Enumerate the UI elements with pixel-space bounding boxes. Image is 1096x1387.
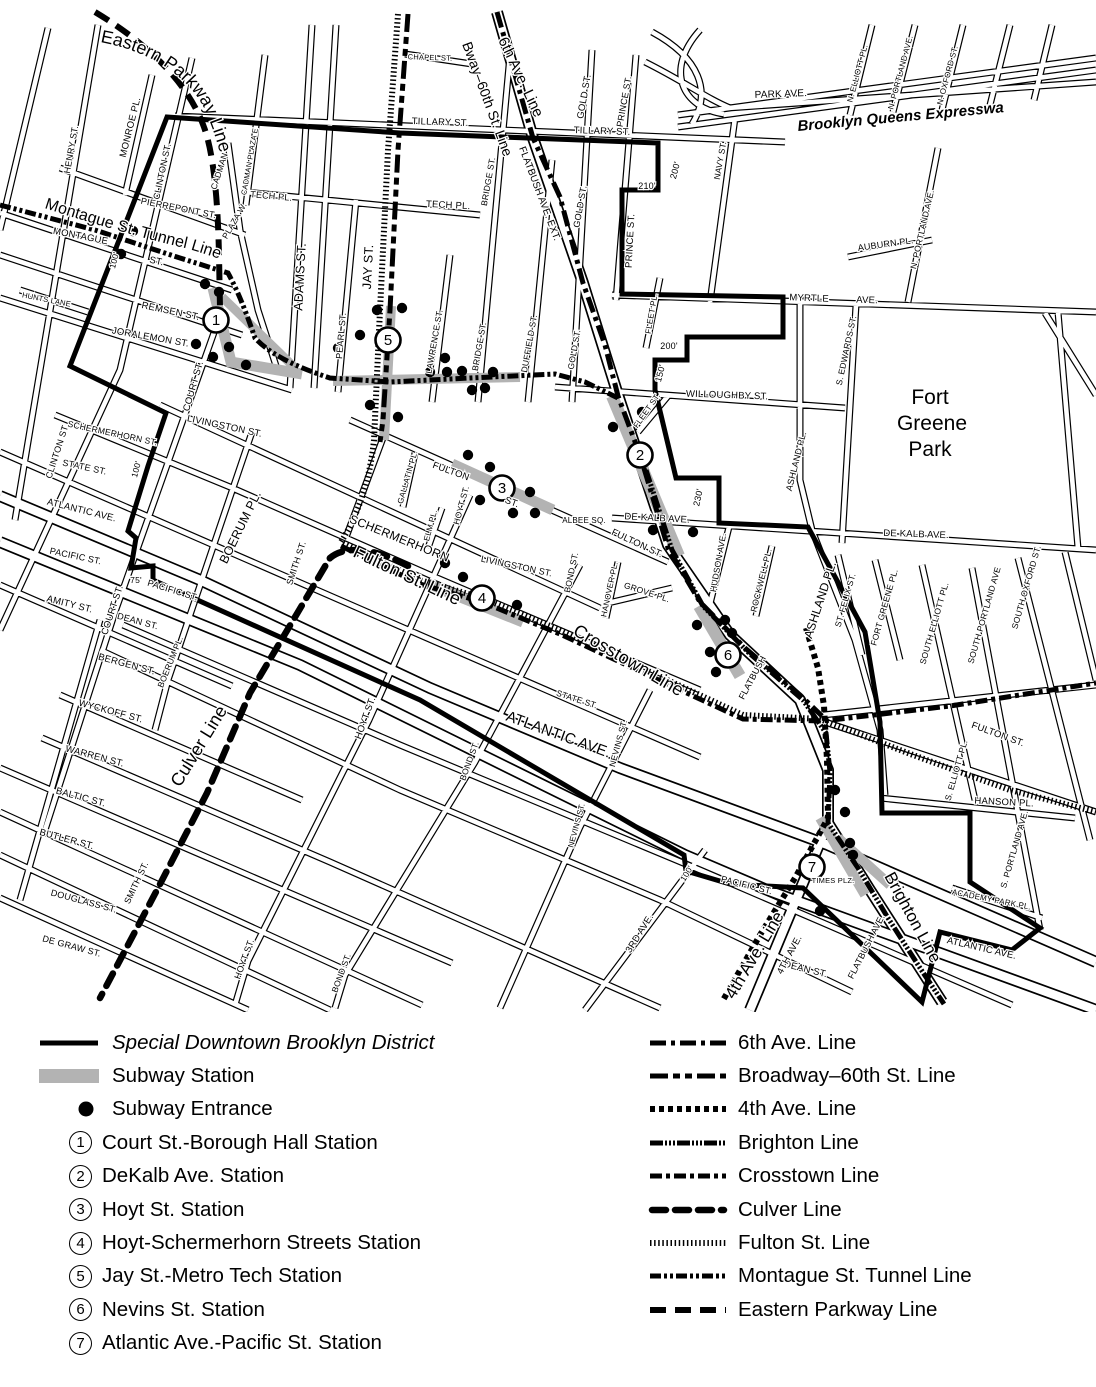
subway-entrance-dot	[512, 600, 522, 610]
legend-row-line-crosstown: Crosstown Line	[648, 1160, 972, 1193]
legend-row-station-3: 3 Hoyt St. Station	[38, 1193, 434, 1226]
fulton-swatch	[648, 1235, 728, 1251]
downtown-brooklyn-subway-map-page: 1234567 Fort Greene Park Eastern Parkway…	[0, 0, 1096, 1387]
legend-row-line-eastern: Eastern Parkway Line	[648, 1293, 972, 1326]
street-label: JAY ST.	[360, 244, 376, 289]
brighton-swatch	[648, 1135, 728, 1151]
subway-entrance-dot	[840, 807, 850, 817]
subway-entrance-dot	[488, 367, 498, 377]
subway-entrance-dot	[397, 303, 407, 313]
subway-entrance-dot	[457, 366, 467, 376]
legend-row-station: Subway Station	[38, 1059, 434, 1092]
street-label: TECH PL.	[426, 199, 471, 212]
station-5-label: Jay St.-Metro Tech Station	[102, 1264, 342, 1288]
legend-right-column: 6th Ave. Line Broadway–60th St. Line 4th…	[648, 1026, 972, 1327]
street-label: 210'	[638, 181, 656, 191]
subway-entrance-dot	[711, 667, 721, 677]
fourth-ave-swatch	[648, 1101, 728, 1117]
legend-row-station-7: 7 Atlantic Ave.-Pacific St. Station	[38, 1327, 434, 1360]
station-4-badge: 4	[69, 1232, 92, 1255]
montague-swatch	[648, 1268, 728, 1284]
station-1-label: Court St.-Borough Hall Station	[102, 1131, 378, 1155]
legend-row-district: Special Downtown Brooklyn District	[38, 1026, 434, 1059]
street-label: PARK AVE.	[754, 88, 807, 101]
subway-entrance-dot	[191, 339, 201, 349]
district-label: Special Downtown Brooklyn District	[112, 1031, 434, 1055]
line-label-sixth: 6th Ave. Line	[738, 1031, 856, 1055]
svg-text:6: 6	[724, 647, 732, 664]
legend-row-station-5: 5 Jay St.-Metro Tech Station	[38, 1260, 434, 1293]
line-label-brighton: Brighton Line	[738, 1131, 859, 1155]
station-6-label: Nevins St. Station	[102, 1298, 265, 1322]
station-4-label: Hoyt-Schermerhorn Streets Station	[102, 1231, 421, 1255]
legend-row-line-broadway: Broadway–60th St. Line	[648, 1059, 972, 1092]
street-label: DE KALB AVE.	[883, 528, 949, 541]
station-label: Subway Station	[112, 1064, 254, 1088]
line-label-broadway: Broadway–60th St. Line	[738, 1064, 956, 1088]
station-5-badge: 5	[69, 1265, 92, 1288]
station-2-badge: 2	[69, 1165, 92, 1188]
svg-text:1: 1	[212, 312, 220, 329]
line-label-crosstown: Crosstown Line	[738, 1164, 879, 1188]
park-label-line3: Park	[908, 438, 952, 461]
svg-text:4: 4	[478, 590, 486, 607]
station-swatch	[38, 1067, 100, 1085]
legend-left-column: Special Downtown Brooklyn District Subwa…	[38, 1026, 434, 1360]
subway-entrance-dot	[458, 572, 468, 582]
station-band-jay-st	[384, 306, 391, 440]
line-label-montague: Montague St. Tunnel Line	[738, 1264, 972, 1288]
subway-entrance-dot	[393, 412, 403, 422]
subway-entrance-dot	[705, 647, 715, 657]
street-label: CHAPEL ST.	[408, 52, 453, 63]
subway-entrance-dot	[688, 527, 698, 537]
subway-entrance-dot	[648, 525, 658, 535]
street-label: AVE.	[856, 295, 878, 307]
eastern-swatch	[648, 1302, 728, 1318]
entrance-dot-swatch	[38, 1100, 100, 1118]
subway-entrance-dot	[845, 838, 855, 848]
station-7-label: Atlantic Ave.-Pacific St. Station	[102, 1331, 382, 1355]
street-label: 75'	[130, 575, 142, 585]
legend-row-station-6: 6 Nevins St. Station	[38, 1293, 434, 1326]
subway-entrance-dot	[355, 330, 365, 340]
legend-row-station-4: 4 Hoyt-Schermerhorn Streets Station	[38, 1226, 434, 1259]
line-label-fourth: 4th Ave. Line	[738, 1097, 856, 1121]
subway-entrance-dot	[608, 422, 618, 432]
street-label: ALBEE SQ.	[562, 516, 606, 525]
station-2-label: DeKalb Ave. Station	[102, 1164, 284, 1188]
subway-entrance-dot	[200, 279, 210, 289]
street-label: TILLARY ST.	[412, 116, 469, 129]
crosstown-swatch	[648, 1168, 728, 1184]
legend-row-station-1: 1 Court St.-Borough Hall Station	[38, 1126, 434, 1159]
park-label-line2: Greene	[897, 412, 967, 435]
subway-entrance-dot	[372, 305, 382, 315]
legend-row-line-fourth: 4th Ave. Line	[648, 1093, 972, 1126]
svg-text:3: 3	[498, 480, 506, 497]
subway-entrance-dot	[530, 508, 540, 518]
subway-entrance-dot	[727, 628, 737, 638]
line-label-fulton: Fulton St. Line	[738, 1231, 870, 1255]
line-label-culver: Culver Line	[738, 1198, 842, 1222]
line-label-eastern: Eastern Parkway Line	[738, 1298, 937, 1322]
legend-row-line-sixth: 6th Ave. Line	[648, 1026, 972, 1059]
subway-entrance-dot	[440, 353, 450, 363]
station-6-badge: 6	[69, 1298, 92, 1321]
subway-entrance-dot	[241, 360, 251, 370]
subway-entrance-dot	[463, 450, 473, 460]
legend-row-line-fulton: Fulton St. Line	[648, 1226, 972, 1259]
legend-row-line-culver: Culver Line	[648, 1193, 972, 1226]
station-7-badge: 7	[69, 1332, 92, 1355]
subway-entrance-dot	[830, 785, 840, 795]
street-label: MYRTLE	[789, 292, 829, 304]
legend-row-station-2: 2 DeKalb Ave. Station	[38, 1160, 434, 1193]
svg-text:7: 7	[808, 859, 816, 876]
subway-entrance-dot	[525, 487, 535, 497]
subway-entrance-dot	[214, 287, 224, 297]
subway-entrance-dot	[720, 615, 730, 625]
subway-entrance-dot	[848, 850, 858, 860]
subway-entrance-dot	[475, 495, 485, 505]
sixth-ave-swatch	[648, 1035, 728, 1051]
station-1-badge: 1	[69, 1131, 92, 1154]
entrance-label: Subway Entrance	[112, 1097, 273, 1121]
subway-entrance-dot	[467, 385, 477, 395]
subway-entrance-dot	[208, 352, 218, 362]
station-marker-5: 5	[376, 328, 401, 353]
district-line-swatch	[38, 1034, 100, 1052]
street-label: 200'	[660, 341, 678, 351]
street-label: TIMES PLZ.	[812, 876, 855, 885]
station-3-badge: 3	[69, 1198, 92, 1221]
subway-entrance-dot	[692, 620, 702, 630]
station-marker-4: 4	[470, 586, 495, 611]
subway-entrance-dot	[365, 400, 375, 410]
station-marker-2: 2	[628, 443, 653, 468]
subway-entrance-dot	[815, 906, 825, 916]
subway-entrance-dot	[224, 342, 234, 352]
map-canvas: 1234567 Fort Greene Park Eastern Parkway…	[0, 0, 1096, 1012]
svg-text:2: 2	[636, 447, 644, 464]
culver-swatch	[648, 1202, 728, 1218]
station-3-label: Hoyt St. Station	[102, 1198, 244, 1222]
station-marker-1: 1	[204, 308, 229, 333]
station-marker-6: 6	[716, 643, 741, 668]
legend-row-entrance: Subway Entrance	[38, 1093, 434, 1126]
svg-text:5: 5	[384, 332, 392, 349]
subway-entrance-dot	[442, 367, 452, 377]
park-label-line1: Fort	[911, 386, 949, 409]
broadway-swatch	[648, 1068, 728, 1084]
legend-row-line-montague: Montague St. Tunnel Line	[648, 1260, 972, 1293]
subway-entrance-dot	[480, 383, 490, 393]
subway-entrance-dot	[485, 462, 495, 472]
legend-row-line-brighton: Brighton Line	[648, 1126, 972, 1159]
